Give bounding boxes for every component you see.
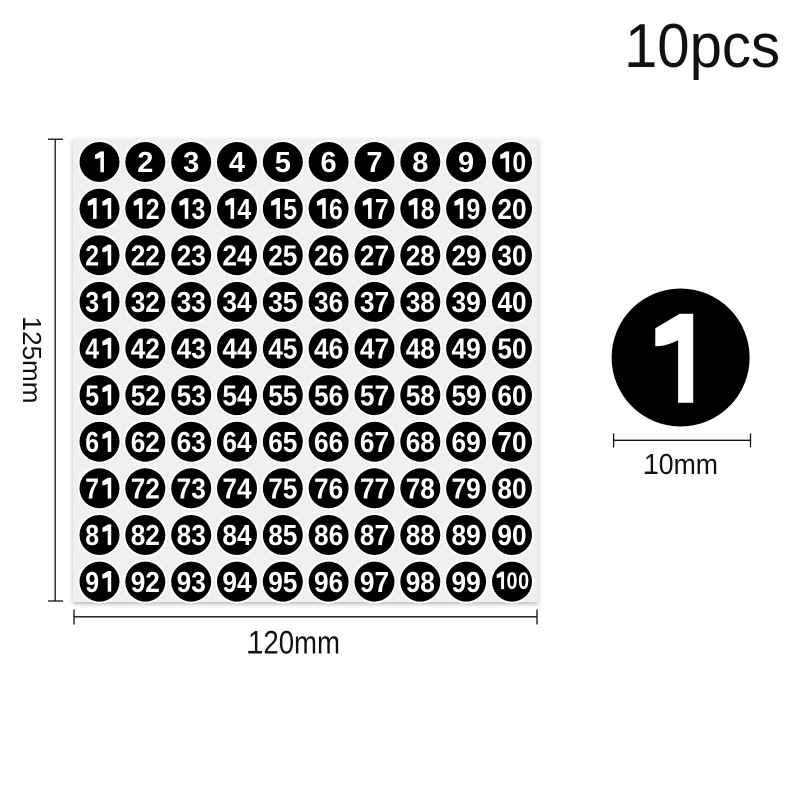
svg-text:27: 27	[360, 240, 389, 272]
svg-text:95: 95	[268, 567, 297, 599]
svg-text:89: 89	[452, 520, 481, 552]
svg-text:30: 30	[497, 240, 526, 272]
svg-text:25: 25	[268, 240, 297, 272]
svg-text:53: 53	[177, 380, 206, 412]
svg-text:47: 47	[360, 334, 389, 366]
svg-text:49: 49	[452, 334, 481, 366]
svg-text:42: 42	[131, 334, 160, 366]
svg-text:66: 66	[314, 427, 343, 459]
svg-text:5: 5	[283, 194, 297, 226]
svg-text:56: 56	[314, 380, 343, 412]
svg-text:2: 2	[137, 147, 153, 179]
svg-text:43: 43	[177, 334, 206, 366]
svg-text:76: 76	[314, 474, 343, 506]
svg-text:62: 62	[131, 427, 160, 459]
svg-text:46: 46	[314, 334, 343, 366]
svg-text:57: 57	[360, 380, 389, 412]
svg-text:9: 9	[85, 567, 99, 599]
svg-text:0: 0	[506, 568, 517, 595]
svg-text:82: 82	[131, 520, 160, 552]
svg-text:78: 78	[406, 474, 435, 506]
svg-text:72: 72	[131, 474, 160, 506]
svg-text:97: 97	[360, 567, 389, 599]
svg-text:52: 52	[131, 380, 160, 412]
svg-text:4: 4	[85, 334, 99, 366]
svg-text:75: 75	[268, 474, 297, 506]
svg-text:69: 69	[452, 427, 481, 459]
svg-text:96: 96	[314, 567, 343, 599]
svg-text:33: 33	[177, 287, 206, 319]
svg-text:98: 98	[406, 567, 435, 599]
svg-text:6: 6	[321, 147, 337, 179]
svg-text:38: 38	[406, 287, 435, 319]
svg-text:6: 6	[329, 194, 343, 226]
svg-text:2: 2	[146, 194, 160, 226]
svg-text:3: 3	[183, 147, 199, 179]
svg-text:93: 93	[177, 567, 206, 599]
svg-text:7: 7	[366, 147, 382, 179]
svg-text:22: 22	[131, 240, 160, 272]
svg-text:55: 55	[268, 380, 297, 412]
svg-text:67: 67	[360, 427, 389, 459]
svg-text:125mm: 125mm	[17, 317, 47, 404]
svg-text:48: 48	[406, 334, 435, 366]
svg-text:10mm: 10mm	[644, 449, 718, 481]
svg-text:79: 79	[452, 474, 481, 506]
svg-text:9: 9	[467, 194, 481, 226]
svg-text:120mm: 120mm	[248, 625, 340, 661]
svg-text:73: 73	[177, 474, 206, 506]
svg-text:26: 26	[314, 240, 343, 272]
svg-text:3: 3	[192, 194, 206, 226]
svg-text:44: 44	[222, 334, 251, 366]
svg-text:64: 64	[222, 427, 251, 459]
svg-text:3: 3	[85, 287, 99, 319]
svg-text:92: 92	[131, 567, 160, 599]
svg-text:90: 90	[497, 520, 526, 552]
svg-text:20: 20	[497, 194, 526, 226]
svg-text:5: 5	[85, 380, 99, 412]
svg-text:2: 2	[85, 240, 99, 272]
svg-text:60: 60	[497, 380, 526, 412]
svg-text:80: 80	[497, 474, 526, 506]
svg-text:32: 32	[131, 287, 160, 319]
svg-text:8: 8	[421, 194, 435, 226]
svg-text:94: 94	[222, 567, 251, 599]
svg-text:50: 50	[497, 334, 526, 366]
svg-text:23: 23	[177, 240, 206, 272]
svg-text:54: 54	[222, 380, 251, 412]
svg-text:70: 70	[497, 427, 526, 459]
svg-text:4: 4	[237, 194, 251, 226]
svg-text:58: 58	[406, 380, 435, 412]
svg-text:87: 87	[360, 520, 389, 552]
svg-text:8: 8	[412, 147, 428, 179]
svg-text:29: 29	[452, 240, 481, 272]
svg-text:85: 85	[268, 520, 297, 552]
svg-text:40: 40	[497, 287, 526, 319]
svg-text:86: 86	[314, 520, 343, 552]
svg-text:7: 7	[85, 474, 99, 506]
svg-text:34: 34	[222, 287, 251, 319]
svg-text:7: 7	[375, 194, 389, 226]
svg-text:88: 88	[406, 520, 435, 552]
svg-text:4: 4	[229, 147, 245, 179]
svg-text:68: 68	[406, 427, 435, 459]
svg-text:0: 0	[512, 147, 526, 179]
svg-text:8: 8	[85, 520, 99, 552]
svg-text:6: 6	[85, 427, 99, 459]
svg-text:59: 59	[452, 380, 481, 412]
svg-text:74: 74	[222, 474, 251, 506]
svg-text:9: 9	[458, 147, 474, 179]
svg-text:5: 5	[275, 147, 291, 179]
svg-text:39: 39	[452, 287, 481, 319]
svg-text:28: 28	[406, 240, 435, 272]
svg-text:10pcs: 10pcs	[625, 12, 780, 81]
svg-text:99: 99	[452, 567, 481, 599]
svg-text:0: 0	[518, 568, 529, 595]
svg-text:63: 63	[177, 427, 206, 459]
svg-text:37: 37	[360, 287, 389, 319]
svg-text:84: 84	[222, 520, 251, 552]
svg-text:45: 45	[268, 334, 297, 366]
svg-text:77: 77	[360, 474, 389, 506]
svg-text:35: 35	[268, 287, 297, 319]
svg-text:65: 65	[268, 427, 297, 459]
svg-text:83: 83	[177, 520, 206, 552]
svg-text:36: 36	[314, 287, 343, 319]
svg-text:24: 24	[222, 240, 251, 272]
